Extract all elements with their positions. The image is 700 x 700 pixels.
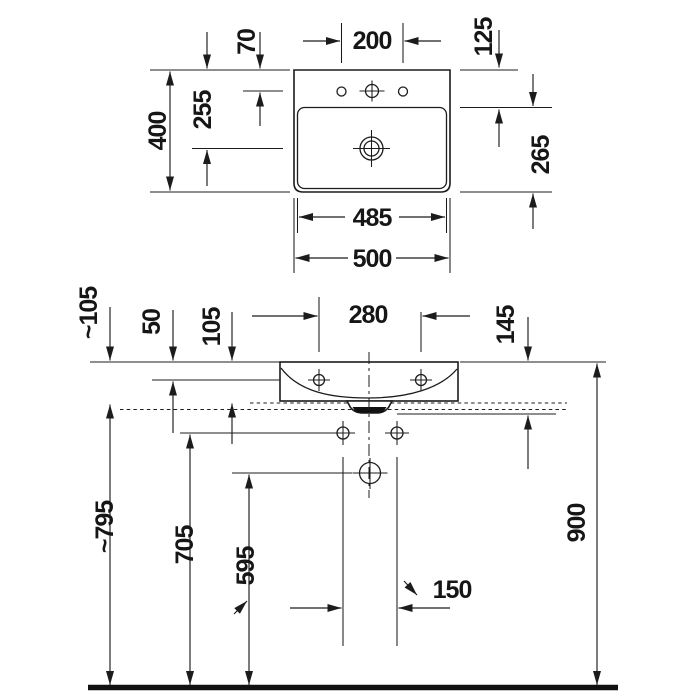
fixing-hole-right [385, 421, 409, 445]
fixing-hole-left [331, 421, 355, 445]
waste-outlet [353, 458, 388, 489]
dim-label-400: 400 [144, 112, 172, 151]
dim-label-900: 900 [563, 504, 591, 543]
washbasin-dimension-diagram: 200 70 255 400 125 265 485 500 [0, 0, 700, 700]
dim-label-595: 595 [232, 546, 260, 586]
dim-label-125: 125 [470, 17, 498, 57]
dim-label-485: 485 [353, 204, 393, 232]
dim-label-705: 705 [171, 525, 199, 565]
dim-label-255: 255 [189, 90, 217, 130]
dim-label-265: 265 [527, 135, 555, 175]
dim-label-500: 500 [353, 245, 392, 273]
dim-label-280: 280 [349, 301, 388, 329]
dim-label-200: 200 [353, 27, 392, 55]
dim-label-approx795: ~795 [91, 500, 119, 553]
dim-label-150: 150 [433, 576, 472, 604]
dim-label-50: 50 [138, 309, 166, 335]
dim-label-approx105: ~105 [75, 286, 103, 339]
dim-label-145: 145 [492, 305, 520, 345]
technical-drawing-page: 200 70 255 400 125 265 485 500 [0, 0, 700, 700]
dim-595-leader-arrow [234, 601, 247, 614]
dim-150-leader-arrow [404, 581, 417, 595]
dim-label-70: 70 [233, 29, 261, 55]
dim-label-105: 105 [198, 307, 226, 347]
front-view: ~105 50 105 280 145 ~795 705 595 900 150 [75, 286, 618, 688]
top-view: 200 70 255 400 125 265 485 500 [144, 17, 555, 273]
